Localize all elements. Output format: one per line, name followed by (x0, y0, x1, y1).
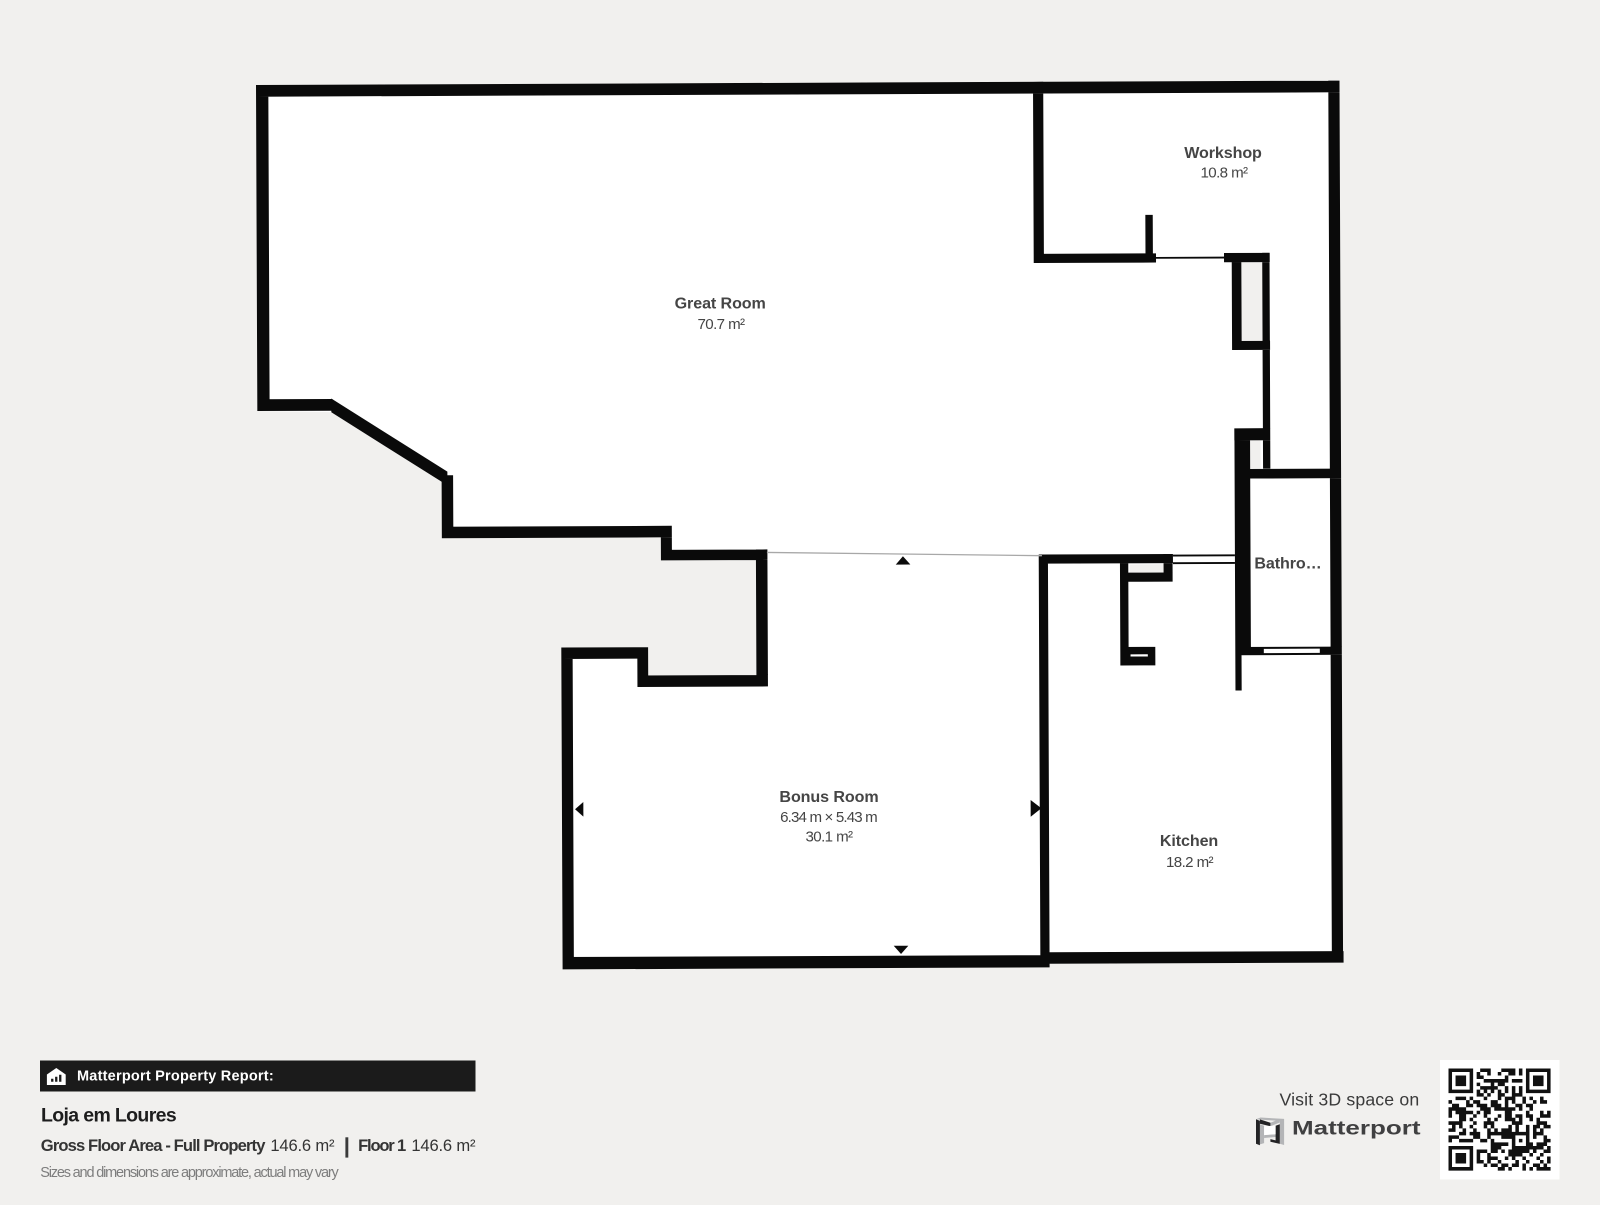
svg-text:Bonus Room: Bonus Room (779, 788, 878, 806)
svg-text:146.6 m²: 146.6 m² (270, 1136, 335, 1155)
svg-text:Matterport Property Report:: Matterport Property Report: (77, 1069, 274, 1085)
svg-text:6.34 m × 5.43 m: 6.34 m × 5.43 m (780, 809, 877, 826)
svg-text:70.7 m²: 70.7 m² (698, 316, 746, 333)
svg-text:Kitchen: Kitchen (1160, 832, 1218, 850)
svg-text:Great Room: Great Room (675, 295, 766, 313)
svg-text:Gross Floor Area - Full Proper: Gross Floor Area - Full Property (41, 1136, 266, 1155)
svg-text:30.1 m²: 30.1 m² (806, 829, 854, 846)
svg-text:18.2 m²: 18.2 m² (1166, 854, 1214, 871)
svg-text:Floor 1: Floor 1 (358, 1136, 406, 1155)
svg-text:146.6 m²: 146.6 m² (411, 1136, 476, 1155)
svg-text:10.8 m²: 10.8 m² (1201, 164, 1249, 181)
svg-text:Workshop: Workshop (1184, 144, 1262, 162)
svg-text:Matterport: Matterport (1292, 1118, 1421, 1139)
svg-text:Loja em Loures: Loja em Loures (41, 1105, 177, 1127)
svg-text:Visit 3D space on: Visit 3D space on (1279, 1090, 1419, 1110)
svg-text:Sizes and dimensions are appro: Sizes and dimensions are approximate, ac… (40, 1165, 339, 1181)
svg-text:Bathro…: Bathro… (1254, 554, 1321, 572)
